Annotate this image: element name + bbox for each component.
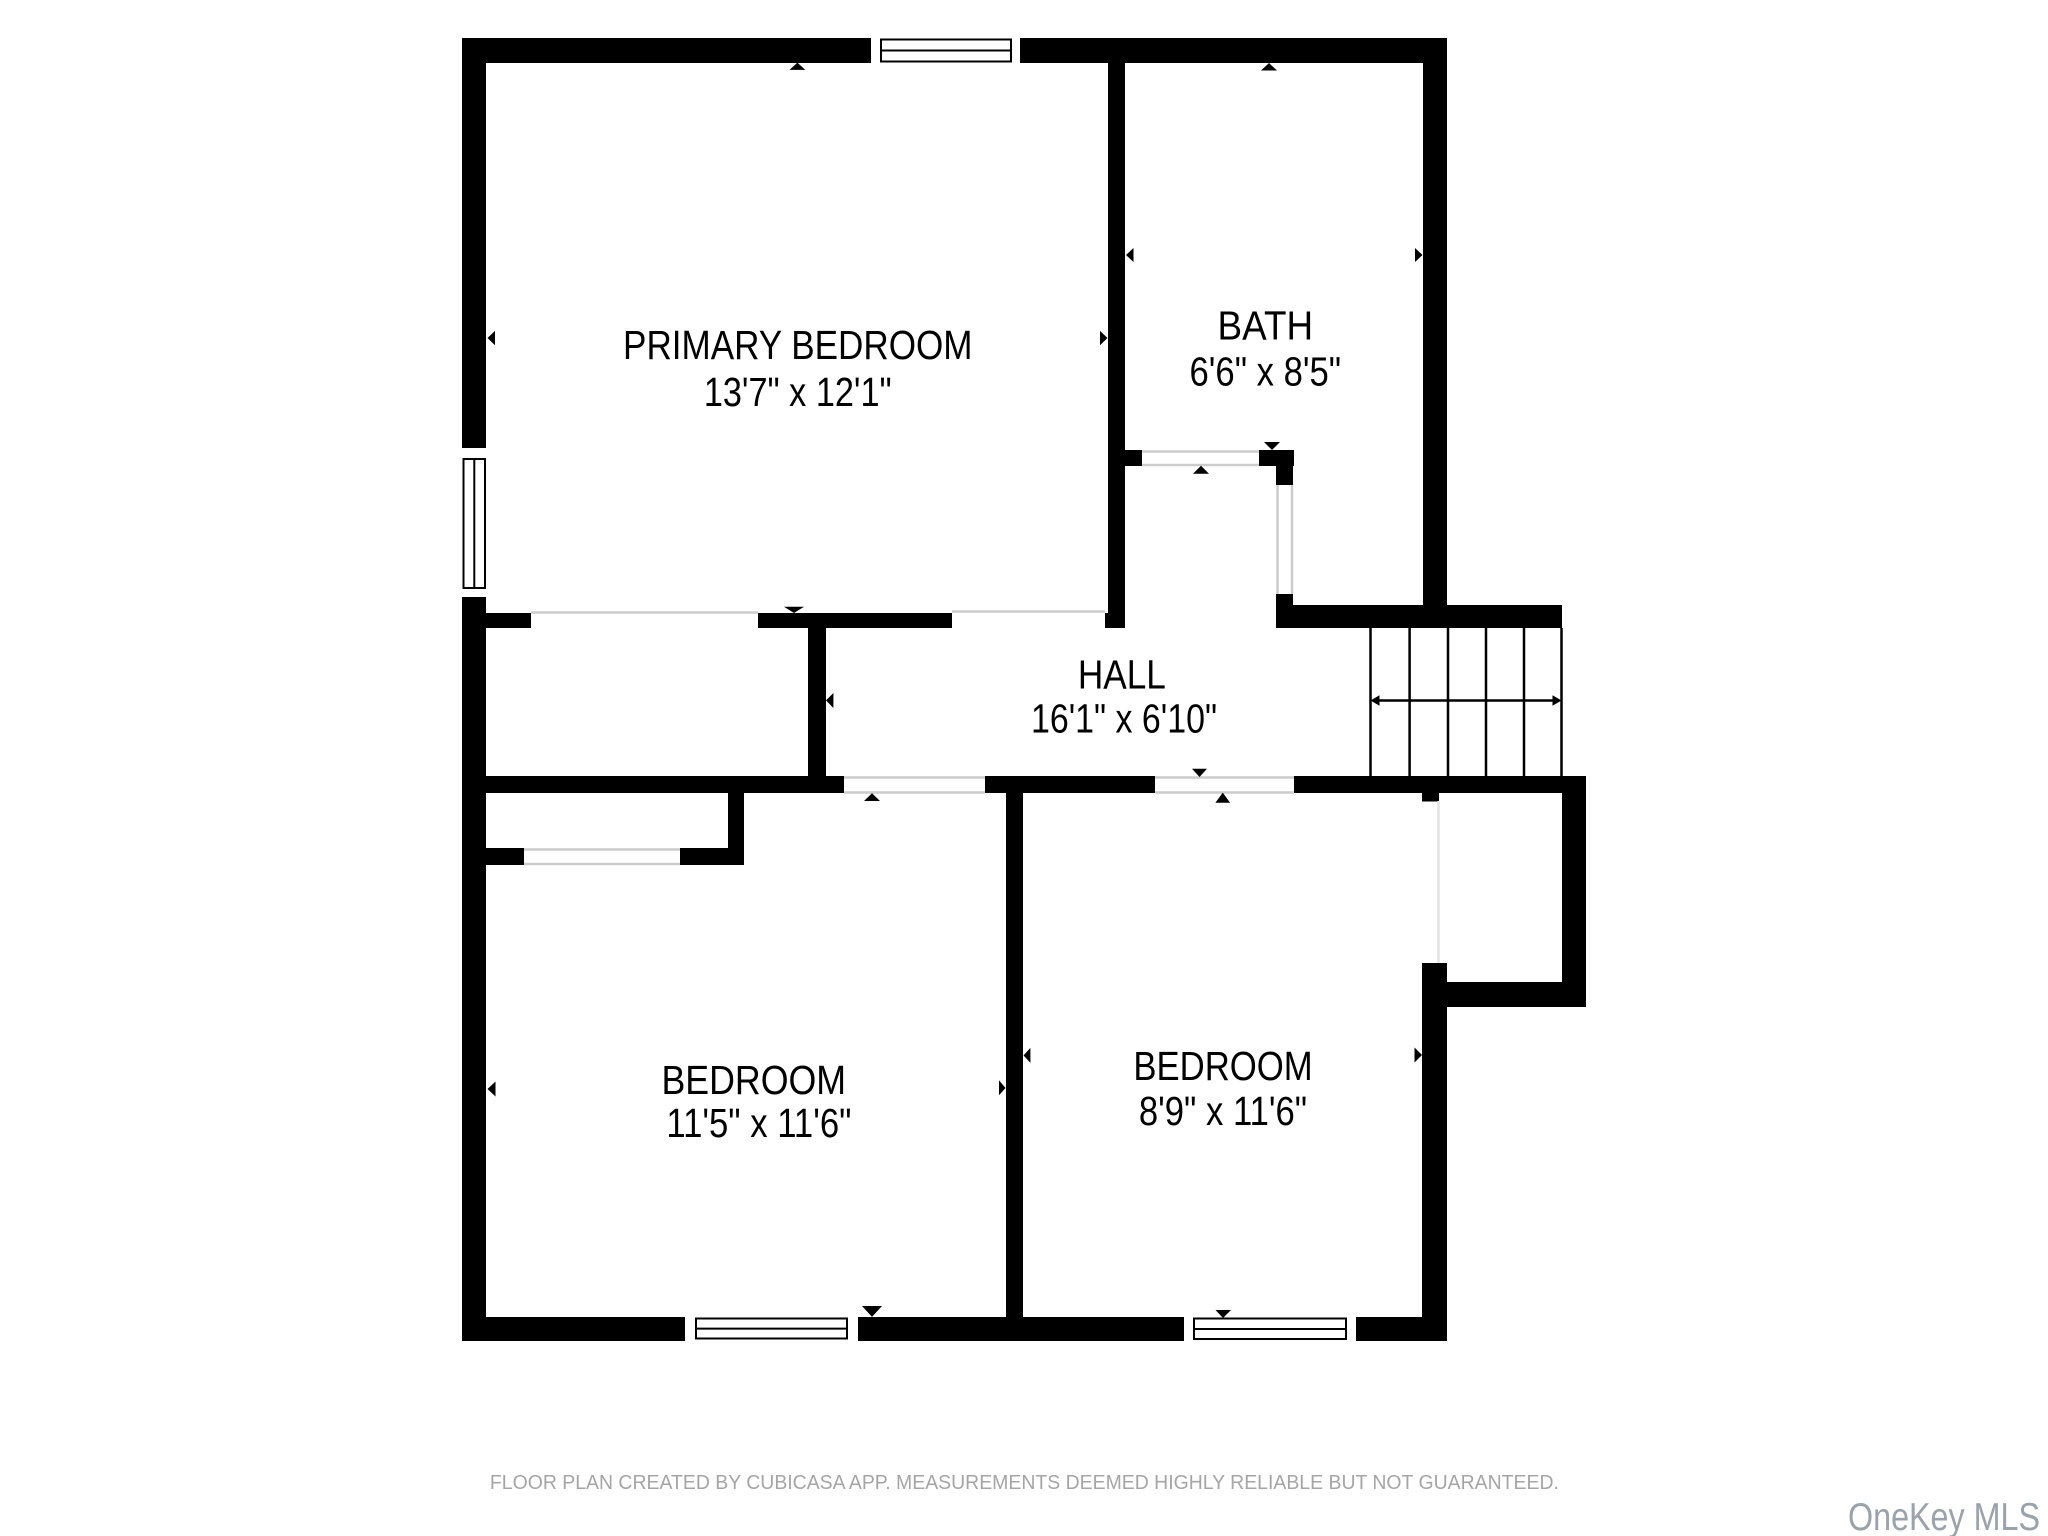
svg-text:OneKey MLS: OneKey MLS: [1848, 1496, 2040, 1536]
svg-text:BATH: BATH: [1218, 304, 1314, 349]
svg-text:6'6" x 8'5": 6'6" x 8'5": [1190, 350, 1342, 395]
svg-text:8'9" x 11'6": 8'9" x 11'6": [1139, 1089, 1307, 1134]
svg-text:PRIMARY BEDROOM: PRIMARY BEDROOM: [623, 322, 972, 368]
svg-text:FLOOR PLAN CREATED BY CUBICASA: FLOOR PLAN CREATED BY CUBICASA APP. MEAS…: [490, 1471, 1559, 1494]
svg-text:BEDROOM: BEDROOM: [1133, 1044, 1312, 1089]
svg-text:BEDROOM: BEDROOM: [661, 1058, 846, 1104]
svg-text:13'7" x 12'1": 13'7" x 12'1": [704, 370, 892, 416]
svg-text:11'5" x 11'6": 11'5" x 11'6": [666, 1101, 851, 1146]
svg-text:16'1" x 6'10": 16'1" x 6'10": [1031, 695, 1217, 741]
svg-text:HALL: HALL: [1078, 652, 1166, 698]
